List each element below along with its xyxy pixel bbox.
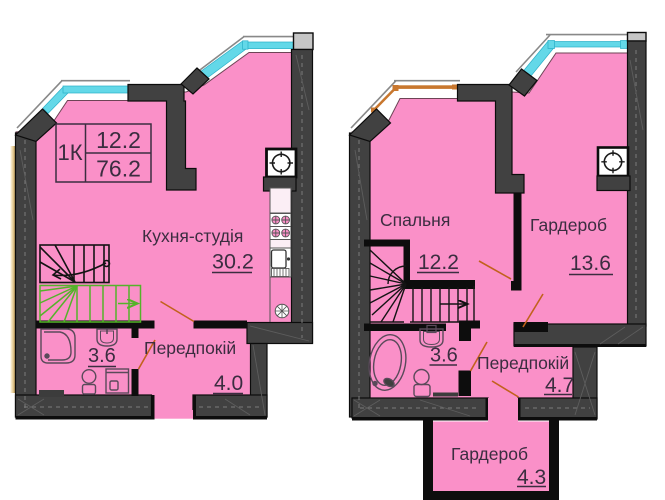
svg-text:4.7: 4.7 (545, 374, 574, 397)
svg-text:Гардероб: Гардероб (451, 444, 528, 464)
svg-text:12.2: 12.2 (418, 251, 459, 274)
svg-text:30.2: 30.2 (212, 250, 254, 274)
svg-text:3.6: 3.6 (430, 345, 458, 367)
svg-text:76.2: 76.2 (96, 156, 141, 182)
svg-text:Кухня-студія: Кухня-студія (142, 226, 243, 246)
svg-text:Спальня: Спальня (380, 210, 450, 230)
svg-text:13.6: 13.6 (570, 252, 611, 275)
svg-text:12.2: 12.2 (96, 127, 141, 153)
svg-text:Гардероб: Гардероб (530, 215, 607, 235)
svg-text:1К: 1К (57, 140, 82, 165)
svg-text:4.3: 4.3 (517, 466, 546, 489)
svg-text:Передпокій: Передпокій (477, 353, 569, 373)
svg-text:3.6: 3.6 (88, 345, 116, 367)
svg-text:Передпокій: Передпокій (144, 338, 236, 358)
svg-text:4.0: 4.0 (214, 372, 243, 395)
